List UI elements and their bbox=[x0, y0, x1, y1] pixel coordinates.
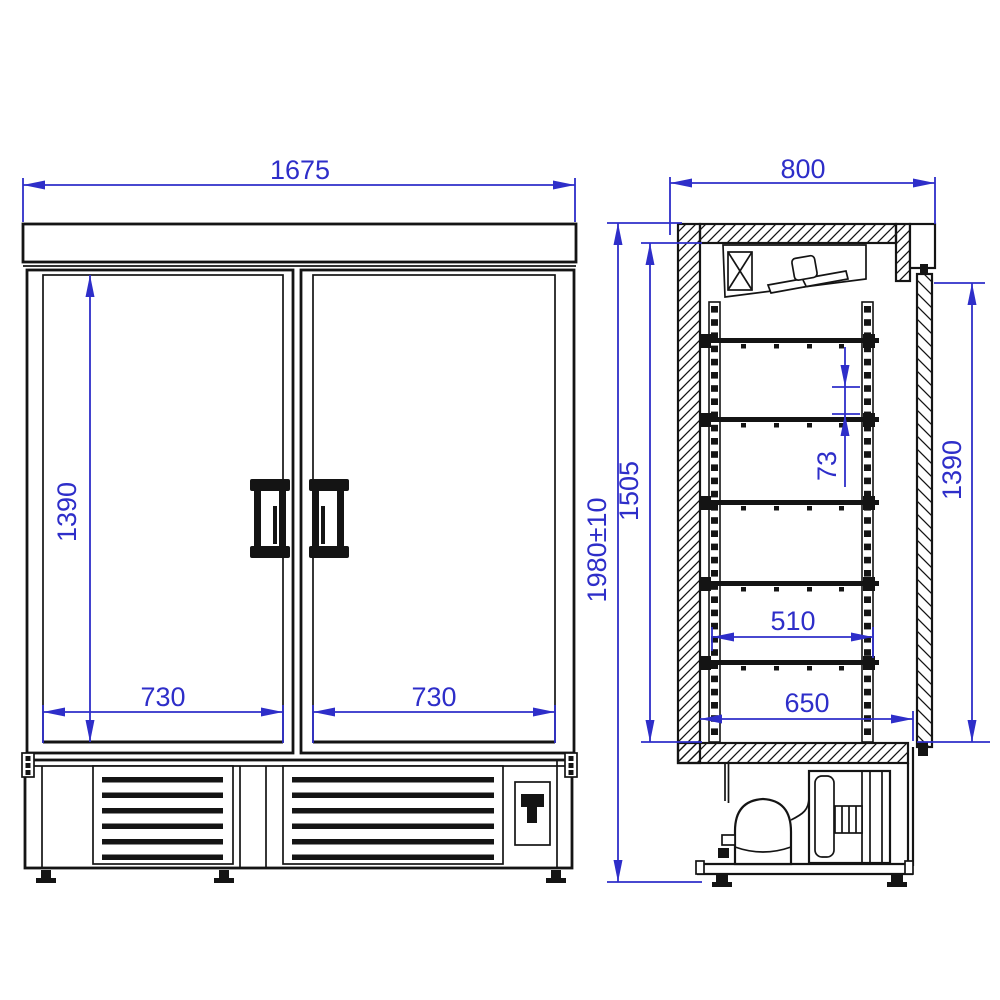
drawing-canvas: 1675 730 730 1390 800 1980±10 1505 73 51… bbox=[0, 0, 1000, 1000]
dim-side-door-height: 1390 bbox=[937, 440, 967, 500]
shelf-hook bbox=[863, 656, 875, 670]
shelf-support-dot bbox=[774, 587, 779, 592]
grille-slat bbox=[292, 777, 494, 783]
shelf bbox=[701, 417, 879, 422]
shelf-hook bbox=[700, 334, 711, 348]
condenser-plate bbox=[815, 776, 834, 857]
dim-front-left-door-width: 730 bbox=[140, 682, 185, 712]
rack-slot bbox=[711, 544, 718, 551]
grille-slat bbox=[292, 808, 494, 814]
dim-front-right-door-width: 730 bbox=[411, 682, 456, 712]
shelf-support-dot bbox=[839, 666, 844, 671]
shelf-support-dot bbox=[839, 587, 844, 592]
shelf-hook bbox=[700, 496, 711, 510]
rack-slot bbox=[711, 728, 718, 735]
base-plate-lip bbox=[696, 861, 704, 874]
dim-side-overall-height: 1980±10 bbox=[582, 498, 612, 603]
shelf-support-dot bbox=[807, 666, 812, 671]
front-view bbox=[22, 224, 577, 868]
door-top-hinge-pin bbox=[920, 264, 928, 274]
side-bottom-insulation bbox=[678, 743, 908, 763]
discharge-pipe bbox=[791, 797, 809, 820]
shelf-support-dot bbox=[807, 506, 812, 511]
hinge-pin bbox=[26, 756, 31, 761]
rack-slot bbox=[711, 398, 718, 405]
shelf-support-dot bbox=[741, 587, 746, 592]
rack-slot bbox=[864, 544, 871, 551]
side-glass-door-section bbox=[917, 274, 932, 747]
rack-slot bbox=[864, 702, 871, 709]
rack-slot bbox=[711, 517, 718, 524]
grille-slat bbox=[292, 855, 494, 861]
shelf-support-dot bbox=[839, 506, 844, 511]
shelf-hook bbox=[700, 413, 711, 427]
compressor-foot bbox=[718, 848, 729, 858]
dimension-arrow bbox=[968, 720, 977, 742]
side-top-insulation bbox=[700, 224, 896, 243]
grille-slat bbox=[292, 824, 494, 830]
rack-slot bbox=[864, 451, 871, 458]
dimension-arrow bbox=[670, 179, 692, 188]
rack-slot bbox=[864, 306, 871, 313]
foot bbox=[41, 870, 51, 878]
foot bbox=[219, 870, 229, 878]
rack-slot bbox=[711, 530, 718, 537]
rack-slot bbox=[711, 385, 718, 392]
shelf bbox=[701, 660, 879, 665]
technical-drawing: 1675 730 730 1390 800 1980±10 1505 73 51… bbox=[0, 0, 1000, 1000]
rack-slot bbox=[864, 728, 871, 735]
foot-base bbox=[546, 878, 566, 883]
dim-shelf-depth: 510 bbox=[770, 606, 815, 636]
shelf-support-dot bbox=[807, 423, 812, 428]
shelf bbox=[701, 338, 879, 343]
rack-slot bbox=[864, 464, 871, 471]
fan-motor bbox=[791, 255, 817, 281]
rack-slot bbox=[864, 610, 871, 617]
grille-slat bbox=[102, 777, 223, 783]
dimension-arrow bbox=[614, 223, 623, 245]
hinge-pin bbox=[26, 770, 31, 775]
rack-slot bbox=[864, 372, 871, 379]
rack-slot bbox=[864, 557, 871, 564]
shelf-support-dot bbox=[774, 423, 779, 428]
dimension-arrow bbox=[646, 720, 655, 742]
foot-base bbox=[36, 878, 56, 883]
shelf-hook bbox=[700, 656, 711, 670]
front-right-door-glass bbox=[313, 275, 555, 742]
shelf-support-dot bbox=[741, 506, 746, 511]
shelf-hook bbox=[863, 577, 875, 591]
foot-base bbox=[214, 878, 234, 883]
side-top-insulation-step bbox=[896, 224, 910, 281]
foot-base bbox=[887, 882, 907, 887]
door-top-frame bbox=[910, 224, 935, 268]
dimension-arrow bbox=[614, 860, 623, 882]
shelf-support-dot bbox=[839, 344, 844, 349]
hinge-pin bbox=[569, 770, 574, 775]
shelf bbox=[701, 581, 879, 586]
rack-slot bbox=[711, 451, 718, 458]
rack-slot bbox=[864, 359, 871, 366]
rack-slot bbox=[864, 649, 871, 656]
dimension-arrow bbox=[891, 715, 913, 724]
dim-front-overall-width: 1675 bbox=[270, 155, 330, 185]
dim-side-interior-height: 1505 bbox=[614, 461, 644, 521]
dimension-arrow bbox=[841, 365, 850, 387]
rack-slot bbox=[711, 491, 718, 498]
rack-slot bbox=[711, 557, 718, 564]
compressor bbox=[735, 799, 791, 864]
rack-slot bbox=[711, 702, 718, 709]
shelf-support-dot bbox=[774, 666, 779, 671]
grille-slat bbox=[102, 855, 223, 861]
shelf-support-dot bbox=[741, 344, 746, 349]
dim-front-glass-height: 1390 bbox=[52, 482, 82, 542]
shelf-support-dot bbox=[741, 666, 746, 671]
dimension-arrow bbox=[23, 181, 45, 190]
rack-slot bbox=[711, 610, 718, 617]
front-canopy bbox=[23, 224, 576, 262]
foot bbox=[891, 874, 903, 882]
shelf-support-dot bbox=[807, 587, 812, 592]
rack-slot bbox=[864, 517, 871, 524]
dim-interior-depth: 650 bbox=[784, 688, 829, 718]
dimension-arrow bbox=[913, 179, 935, 188]
door-bottom-hinge-pin bbox=[918, 742, 928, 756]
rack-slot bbox=[864, 319, 871, 326]
rack-slot bbox=[864, 530, 871, 537]
dimension-arrow bbox=[968, 283, 977, 305]
shelf-support-dot bbox=[774, 344, 779, 349]
foot bbox=[551, 870, 561, 878]
rack-slot bbox=[711, 570, 718, 577]
foot bbox=[716, 874, 728, 882]
base-plate-lip bbox=[905, 861, 913, 874]
rack-slot bbox=[711, 372, 718, 379]
rack-slot bbox=[864, 676, 871, 683]
rack-slot bbox=[711, 319, 718, 326]
foot-base bbox=[712, 882, 732, 887]
grille-slat bbox=[102, 839, 223, 845]
shelf-support-dot bbox=[741, 423, 746, 428]
rack-slot bbox=[711, 676, 718, 683]
rack-slot bbox=[864, 596, 871, 603]
shelf-support-dot bbox=[774, 506, 779, 511]
rack-slot bbox=[711, 464, 718, 471]
dimension-arrow bbox=[646, 243, 655, 265]
shelf-hook bbox=[700, 577, 711, 591]
dim-side-depth: 800 bbox=[780, 154, 825, 184]
rack-slot bbox=[864, 689, 871, 696]
rack-slot bbox=[864, 438, 871, 445]
shelf-support-dot bbox=[807, 344, 812, 349]
rack-slot bbox=[711, 689, 718, 696]
shelf-hook bbox=[863, 413, 875, 427]
rack-slot bbox=[711, 359, 718, 366]
shelf bbox=[701, 500, 879, 505]
rack-slot bbox=[864, 478, 871, 485]
grille-slat bbox=[292, 839, 494, 845]
rack-slot bbox=[711, 425, 718, 432]
rack-slot bbox=[864, 570, 871, 577]
dim-shelf-pitch: 73 bbox=[812, 451, 842, 481]
power-switch bbox=[521, 794, 544, 807]
rack-slot bbox=[711, 306, 718, 313]
side-left-wall-insulation bbox=[678, 224, 700, 763]
grille-slat bbox=[102, 808, 223, 814]
rack-slot bbox=[711, 346, 718, 353]
power-switch-stem bbox=[527, 807, 537, 823]
dimension-arrow bbox=[553, 181, 575, 190]
rack-slot bbox=[864, 385, 871, 392]
rack-slot bbox=[864, 623, 871, 630]
grille-slat bbox=[102, 793, 223, 799]
hinge-pin bbox=[569, 763, 574, 768]
grille-slat bbox=[102, 824, 223, 830]
hinge-pin bbox=[569, 756, 574, 761]
rack-slot bbox=[711, 478, 718, 485]
compressor-bracket bbox=[722, 835, 735, 845]
shelf-hook bbox=[863, 496, 875, 510]
hinge-pin bbox=[26, 763, 31, 768]
grille-slat bbox=[292, 793, 494, 799]
rack-slot bbox=[711, 438, 718, 445]
rack-slot bbox=[864, 398, 871, 405]
rack-slot bbox=[711, 596, 718, 603]
shelf-hook bbox=[863, 334, 875, 348]
